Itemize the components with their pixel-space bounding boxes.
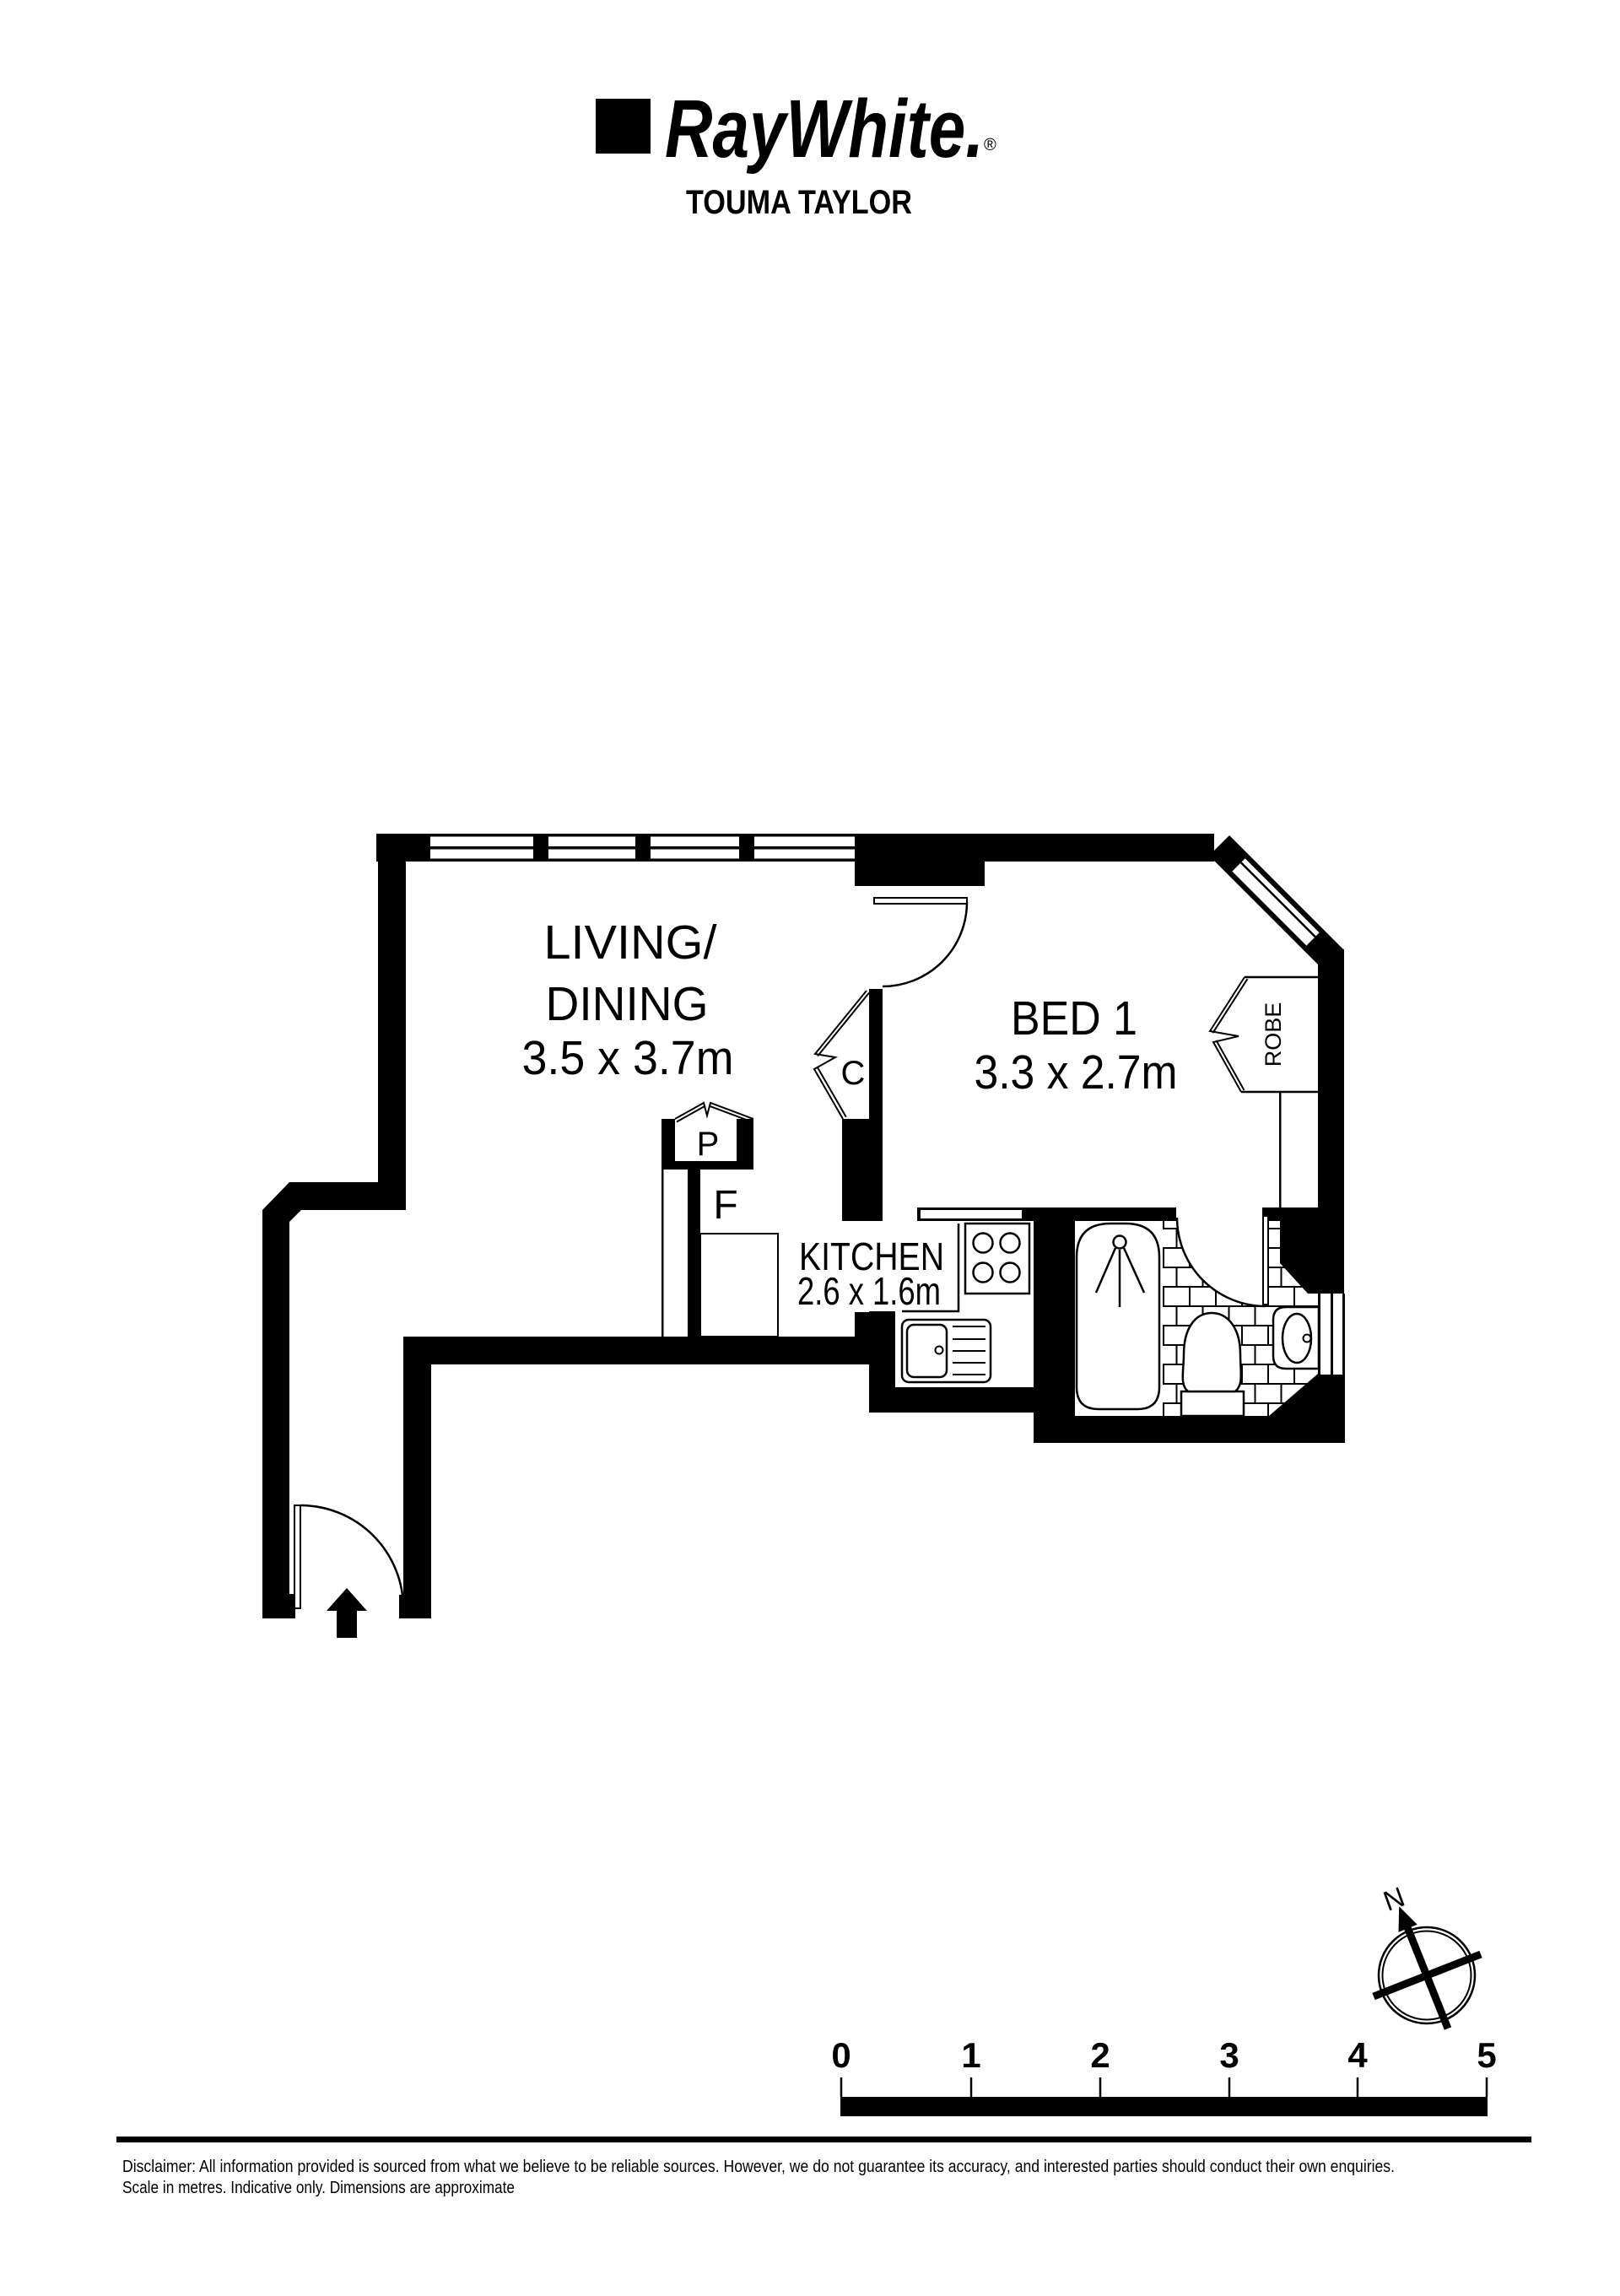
svg-text:RayWhite.: RayWhite. (665, 83, 984, 175)
svg-text:P: P (697, 1126, 720, 1163)
svg-text:F: F (713, 1183, 737, 1228)
svg-text:2: 2 (1090, 2035, 1110, 2075)
svg-text:3.3 x 2.7m: 3.3 x 2.7m (975, 1045, 1178, 1099)
svg-text:Disclaimer: All information pr: Disclaimer: All information provided is … (122, 2158, 1395, 2176)
svg-text:3: 3 (1219, 2035, 1239, 2075)
svg-text:TOUMA TAYLOR: TOUMA TAYLOR (686, 184, 912, 221)
svg-text:2.6 x 1.6m: 2.6 x 1.6m (797, 1269, 941, 1313)
svg-text:LIVING/: LIVING/ (544, 916, 717, 970)
svg-text:Scale in metres. Indicative on: Scale in metres. Indicative only. Dimens… (122, 2179, 515, 2197)
svg-text:DINING: DINING (546, 977, 709, 1031)
svg-text:0: 0 (831, 2035, 850, 2075)
svg-text:4: 4 (1347, 2035, 1368, 2075)
svg-text:5: 5 (1477, 2035, 1496, 2075)
svg-text:®: ® (984, 136, 996, 154)
svg-text:3.5 x 3.7m: 3.5 x 3.7m (522, 1031, 734, 1085)
svg-text:C: C (841, 1055, 866, 1092)
svg-text:1: 1 (961, 2035, 980, 2075)
svg-text:BED 1: BED 1 (1011, 991, 1137, 1045)
svg-text:ROBE: ROBE (1261, 1002, 1286, 1067)
